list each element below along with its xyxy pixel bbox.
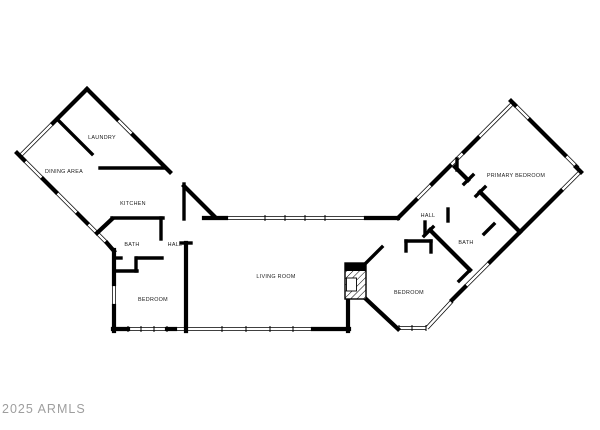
room-label-hall-left: HALL xyxy=(168,242,183,248)
room-label-bath-right: BATH xyxy=(458,240,473,246)
walls-layer xyxy=(17,89,581,331)
floor-plan-canvas: LAUNDRY DINING AREA KITCHEN BATH HALL BE… xyxy=(0,0,600,430)
floor-plan-svg: LAUNDRY DINING AREA KITCHEN BATH HALL BE… xyxy=(0,0,600,430)
watermark: 2025 ARMLS xyxy=(2,402,86,416)
room-label-bedroom-left: BEDROOM xyxy=(138,297,168,303)
fireplace xyxy=(345,263,366,299)
fireplace-mantel xyxy=(345,263,366,271)
room-label-primary-bedroom: PRIMARY BEDROOM xyxy=(487,173,545,179)
room-label-kitchen: KITCHEN xyxy=(120,201,146,207)
room-label-hall-right: HALL xyxy=(421,213,436,219)
room-label-bedroom-right: BEDROOM xyxy=(394,290,424,296)
room-label-living-room: LIVING ROOM xyxy=(256,274,295,280)
fireplace-firebox xyxy=(347,278,357,291)
room-label-bath-left: BATH xyxy=(124,242,139,248)
room-label-laundry: LAUNDRY xyxy=(88,135,116,141)
room-label-dining-area: DINING AREA xyxy=(45,169,83,175)
